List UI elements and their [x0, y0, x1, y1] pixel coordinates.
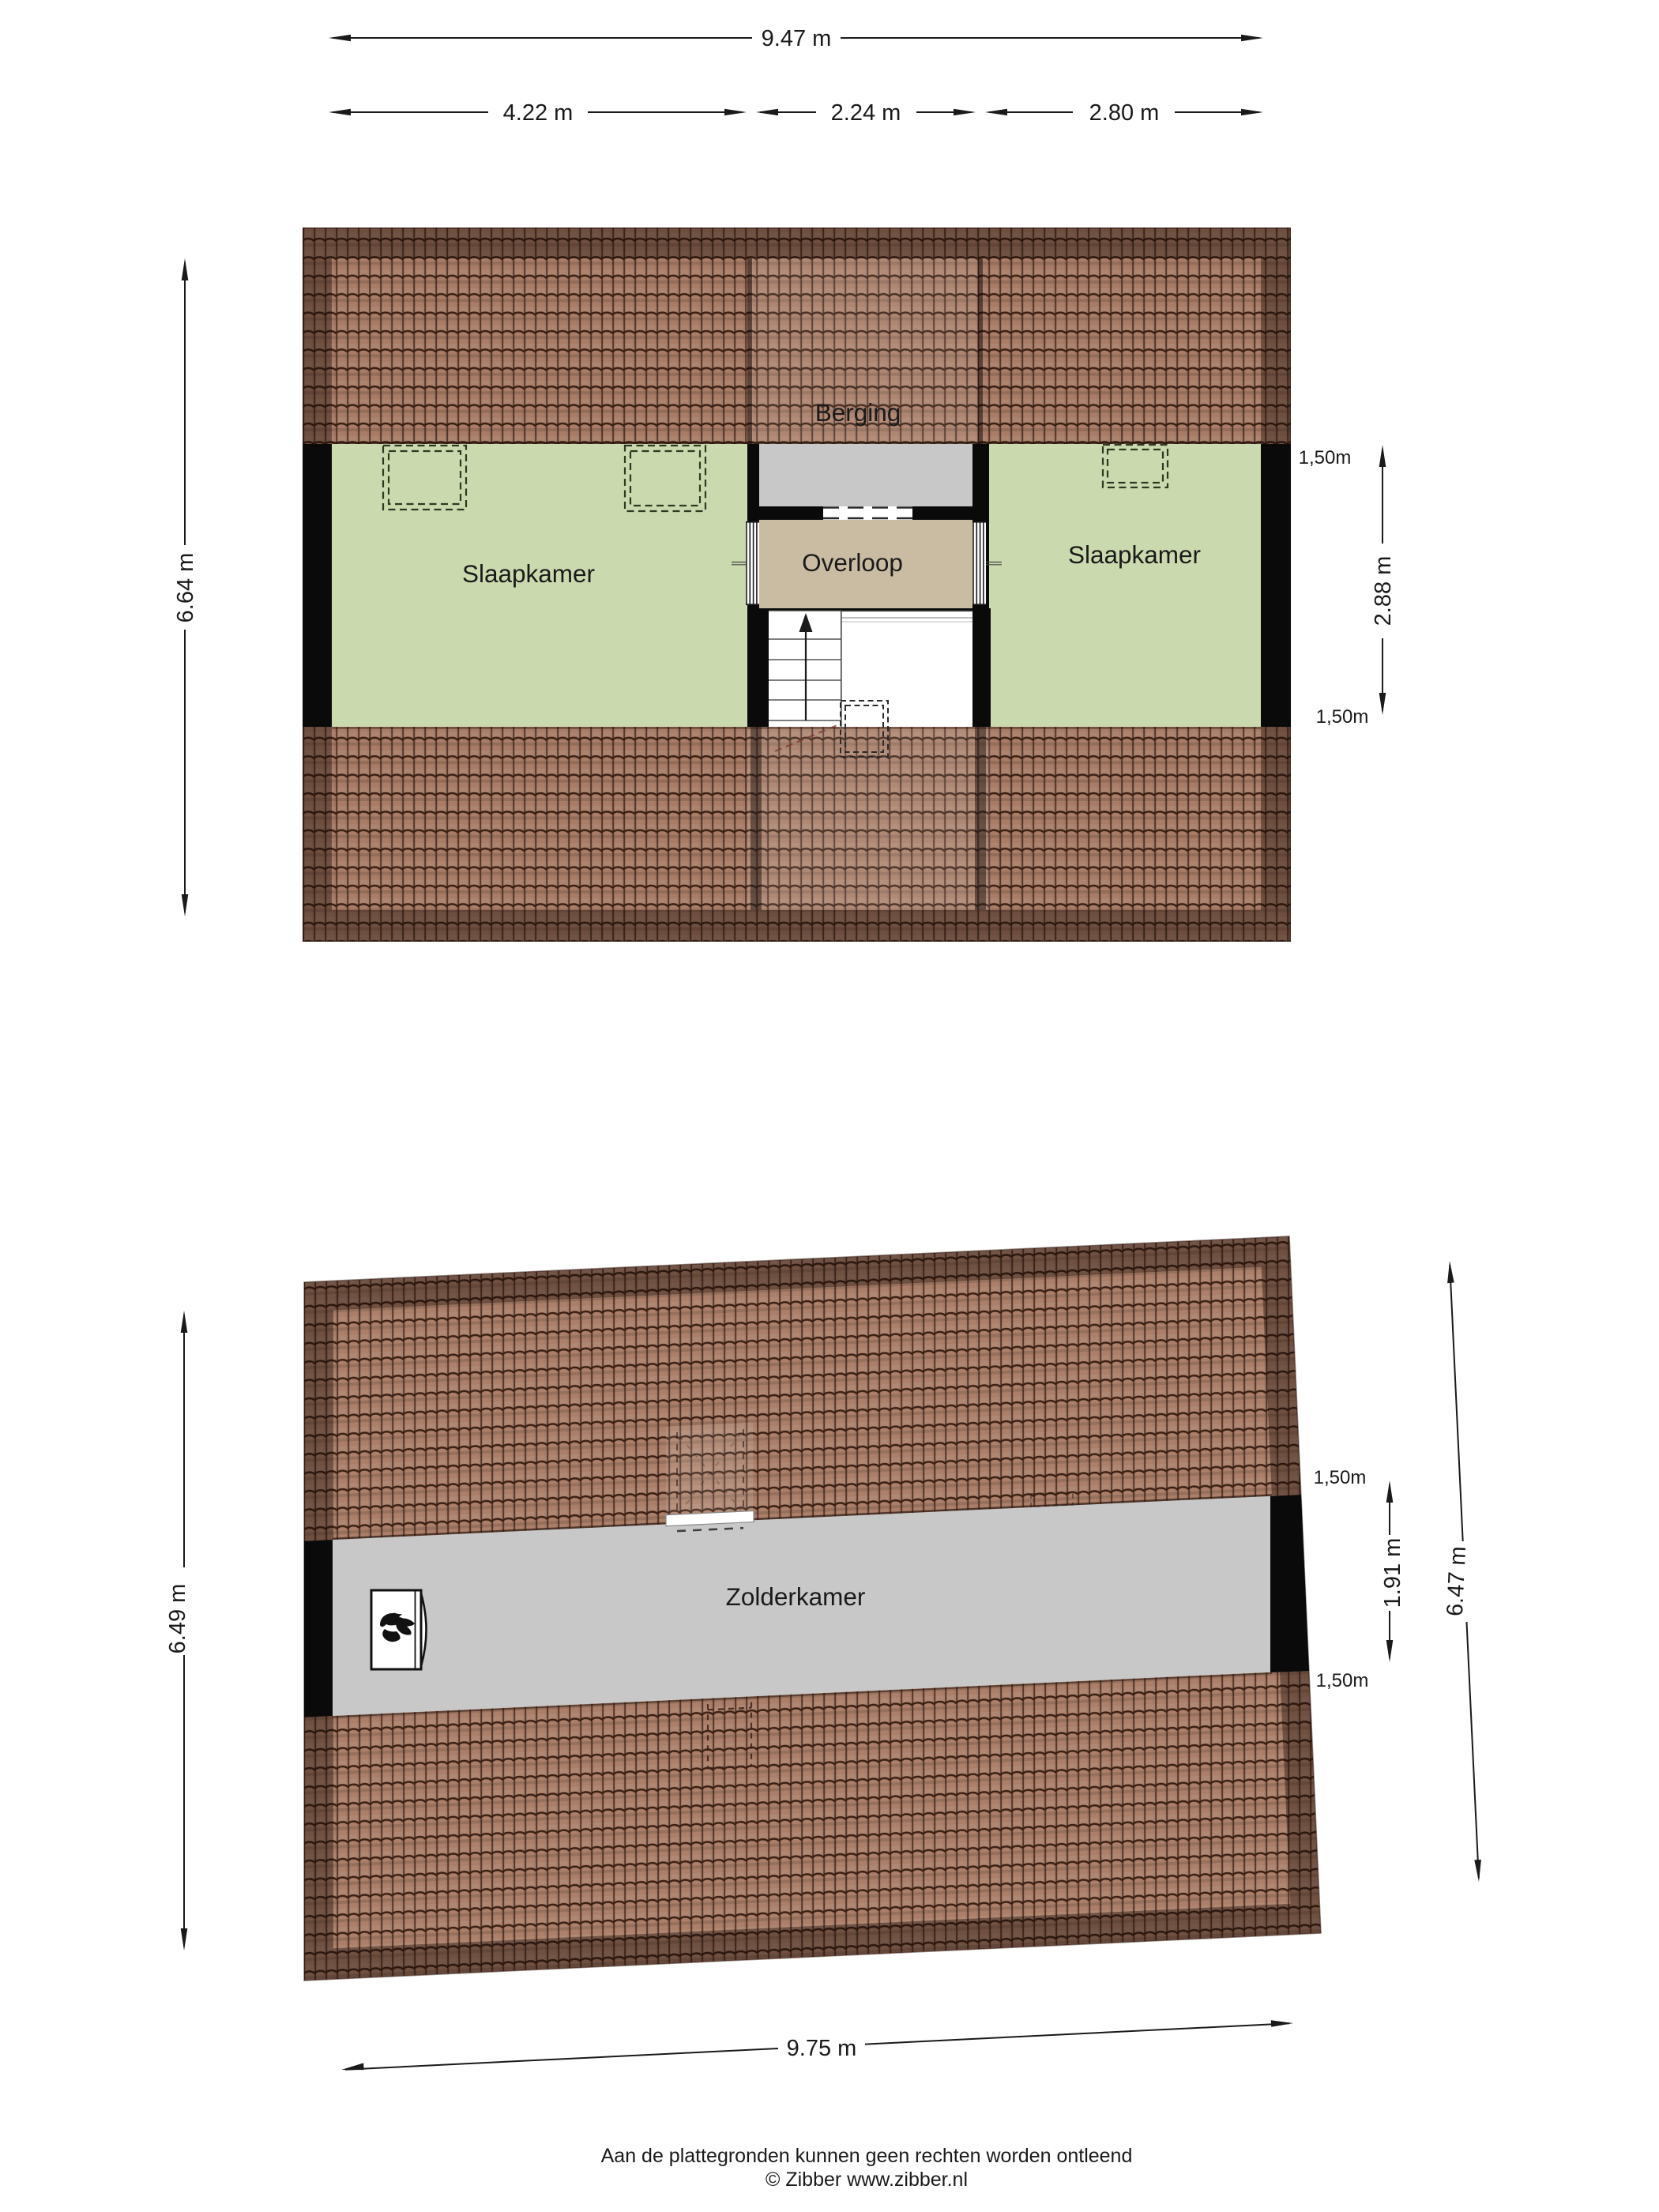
svg-text:6.49 m: 6.49 m — [165, 1584, 190, 1654]
svg-text:1.91 m: 1.91 m — [1380, 1538, 1405, 1608]
svg-text:6.47 m: 6.47 m — [1443, 1546, 1471, 1617]
svg-text:Zolderkamer: Zolderkamer — [726, 1582, 866, 1611]
svg-text:2.24 m: 2.24 m — [831, 100, 901, 126]
svg-text:Aan de plattegronden kunnen ge: Aan de plattegronden kunnen geen rechten… — [601, 2145, 1133, 2167]
svg-text:Slaapkamer: Slaapkamer — [1068, 540, 1201, 569]
svg-text:9.75 m: 9.75 m — [787, 2036, 857, 2061]
svg-text:1,50m: 1,50m — [1314, 1467, 1367, 1488]
svg-text:1,50m: 1,50m — [1316, 1670, 1369, 1691]
svg-text:2.88 m: 2.88 m — [1371, 556, 1396, 626]
svg-text:4.22 m: 4.22 m — [503, 100, 574, 126]
svg-text:Berging: Berging — [815, 398, 901, 427]
svg-text:2.80 m: 2.80 m — [1089, 100, 1160, 126]
svg-text:1,50m: 1,50m — [1299, 447, 1352, 468]
svg-text:Slaapkamer: Slaapkamer — [462, 559, 595, 588]
svg-text:9.47 m: 9.47 m — [762, 26, 832, 51]
svg-text:6.64 m: 6.64 m — [173, 553, 198, 623]
svg-text:© Zibber www.zibber.nl: © Zibber www.zibber.nl — [766, 2169, 968, 2191]
svg-text:Overloop: Overloop — [802, 548, 903, 577]
svg-text:1,50m: 1,50m — [1316, 706, 1369, 728]
